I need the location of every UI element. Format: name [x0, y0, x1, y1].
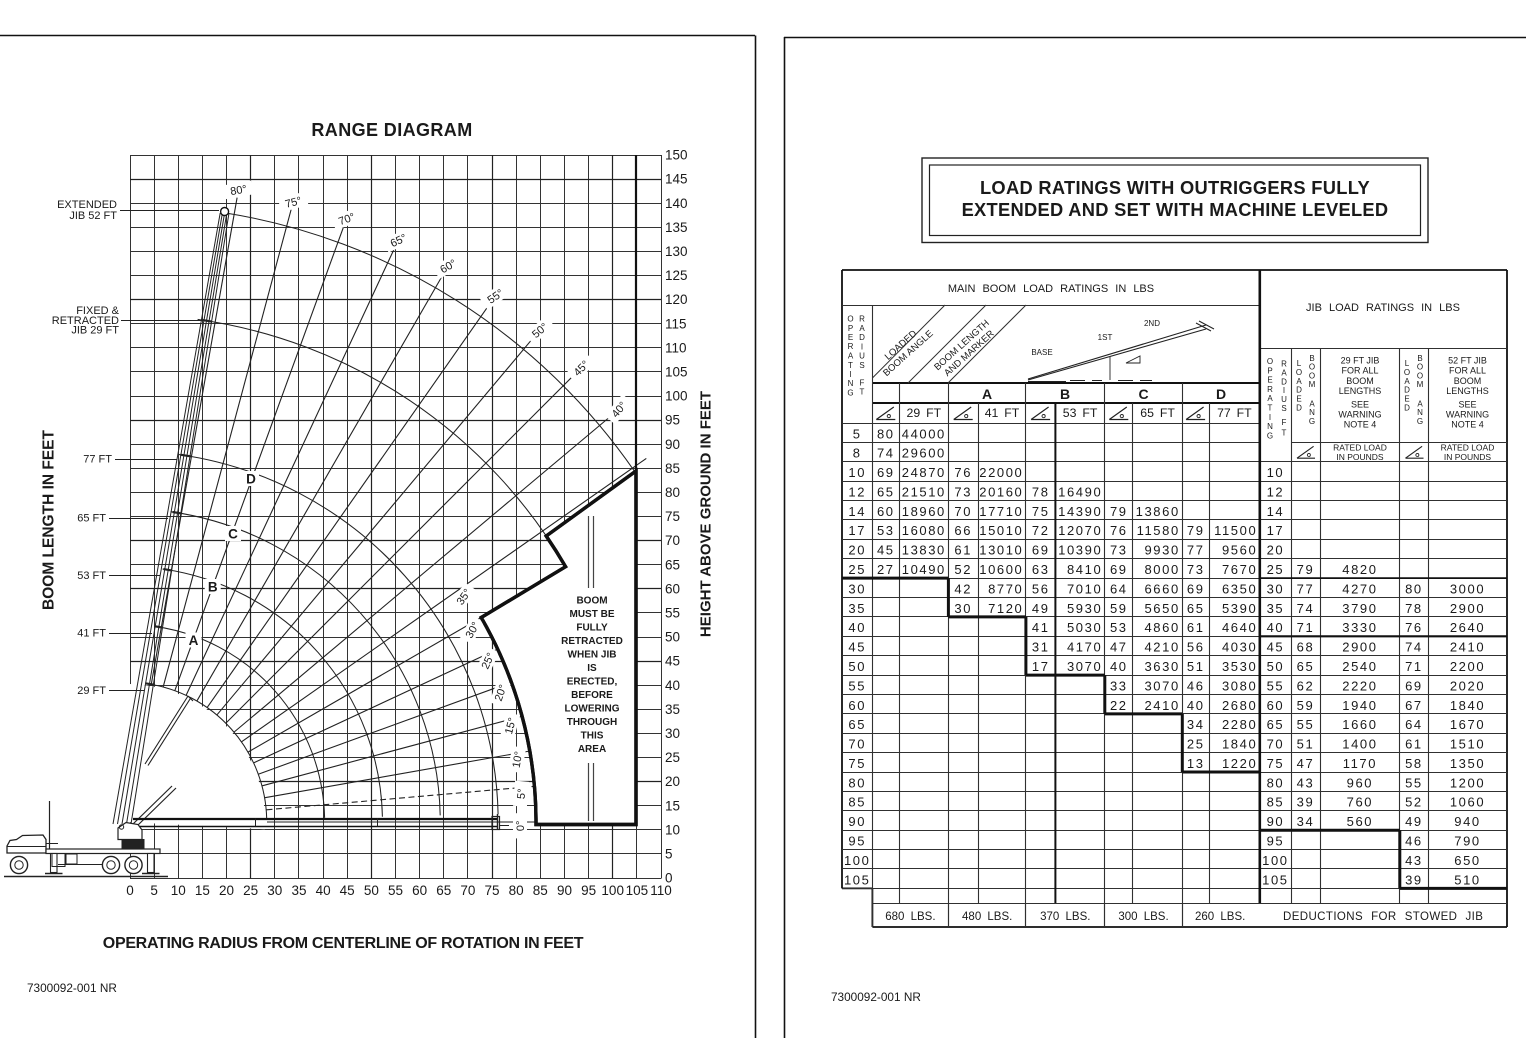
svg-text:D: D	[1404, 404, 1410, 413]
svg-text:35: 35	[291, 883, 306, 898]
svg-text:7010: 7010	[1067, 581, 1102, 596]
svg-text:NOTE 4: NOTE 4	[1344, 420, 1377, 430]
svg-text:0: 0	[665, 871, 673, 886]
svg-text:77: 77	[1297, 581, 1315, 596]
svg-text:1840: 1840	[1450, 698, 1485, 713]
svg-text:O: O	[1417, 371, 1423, 380]
svg-text:9930: 9930	[1144, 543, 1179, 558]
svg-text:8410: 8410	[1067, 562, 1102, 577]
svg-text:70: 70	[954, 504, 972, 519]
svg-text:50: 50	[665, 630, 680, 645]
svg-text:40: 40	[1187, 698, 1205, 713]
svg-text:1060: 1060	[1450, 795, 1485, 810]
svg-text:D: D	[1296, 404, 1302, 413]
svg-text:3070: 3070	[1144, 678, 1179, 693]
svg-text:65: 65	[436, 883, 451, 898]
svg-text:O: O	[847, 315, 853, 324]
svg-text:150: 150	[665, 148, 688, 163]
svg-text:5030: 5030	[1067, 620, 1102, 635]
svg-text:40: 40	[1267, 620, 1285, 635]
svg-text:IN POUNDS: IN POUNDS	[1444, 452, 1492, 462]
svg-text:50: 50	[848, 659, 866, 674]
svg-text:65: 65	[665, 557, 680, 572]
svg-text:I: I	[1269, 413, 1271, 422]
svg-text:M: M	[1309, 380, 1316, 389]
svg-text:53: 53	[1110, 620, 1128, 635]
svg-text:105: 105	[844, 872, 871, 887]
svg-text:370 LBS.: 370 LBS.	[1040, 911, 1090, 923]
svg-text:E: E	[1404, 395, 1409, 404]
svg-text:A: A	[982, 386, 992, 402]
svg-text:42: 42	[954, 581, 972, 596]
svg-text:RATED LOAD: RATED LOAD	[1441, 443, 1495, 453]
svg-text:FOR ALL: FOR ALL	[1449, 366, 1486, 376]
svg-text:95: 95	[581, 883, 596, 898]
svg-text:2020: 2020	[1450, 678, 1485, 693]
svg-text:63: 63	[1032, 562, 1050, 577]
svg-text:15: 15	[665, 798, 680, 813]
svg-text:THIS: THIS	[581, 731, 604, 742]
svg-text:75: 75	[1032, 504, 1050, 519]
svg-text:5: 5	[665, 847, 673, 862]
svg-text:T: T	[1268, 404, 1273, 413]
svg-text:47: 47	[1297, 756, 1315, 771]
svg-text:16080: 16080	[902, 523, 946, 538]
svg-text:BEFORE: BEFORE	[571, 690, 613, 701]
svg-text:WARNING: WARNING	[1338, 410, 1381, 420]
svg-text:65: 65	[1187, 601, 1205, 616]
svg-text:77: 77	[1187, 543, 1205, 558]
svg-text:2280: 2280	[1222, 717, 1257, 732]
svg-text:55: 55	[1405, 775, 1423, 790]
svg-text:BASE: BASE	[1031, 348, 1052, 357]
svg-text:6660: 6660	[1144, 581, 1179, 596]
svg-text:D: D	[859, 333, 865, 342]
svg-text:10: 10	[665, 822, 680, 837]
svg-text:N: N	[1417, 408, 1423, 417]
svg-text:AREA: AREA	[578, 744, 606, 755]
svg-text:17: 17	[848, 523, 866, 538]
svg-text:I: I	[1283, 386, 1285, 395]
svg-text:3790: 3790	[1342, 601, 1377, 616]
svg-text:55: 55	[848, 678, 866, 693]
svg-text:10390: 10390	[1058, 543, 1102, 558]
svg-text:30: 30	[954, 601, 972, 616]
svg-text:9560: 9560	[1222, 543, 1257, 558]
svg-text:75: 75	[1267, 756, 1285, 771]
svg-text:RATED LOAD: RATED LOAD	[1333, 443, 1387, 453]
svg-text:20: 20	[665, 774, 680, 789]
svg-text:R: R	[848, 342, 854, 351]
svg-text:RANGE DIAGRAM: RANGE DIAGRAM	[311, 120, 472, 140]
svg-text:G: G	[1417, 417, 1423, 426]
svg-text:5650: 5650	[1144, 601, 1179, 616]
svg-text:30: 30	[848, 581, 866, 596]
svg-text:2540: 2540	[1342, 659, 1377, 674]
svg-text:E: E	[1296, 395, 1301, 404]
svg-text:2900: 2900	[1450, 601, 1485, 616]
svg-text:T: T	[848, 361, 853, 370]
svg-text:960: 960	[1347, 775, 1374, 790]
svg-text:73: 73	[1187, 562, 1205, 577]
svg-text:95: 95	[1267, 834, 1285, 849]
svg-text:2220: 2220	[1342, 678, 1377, 693]
svg-text:B: B	[208, 580, 218, 595]
svg-text:U: U	[859, 352, 865, 361]
svg-text:55: 55	[388, 883, 403, 898]
svg-text:4170: 4170	[1067, 640, 1102, 655]
svg-text:BOOM: BOOM	[1346, 376, 1374, 386]
svg-text:80: 80	[665, 485, 680, 500]
svg-text:17: 17	[1032, 659, 1050, 674]
svg-text:510: 510	[1454, 872, 1481, 887]
svg-text:O: O	[1309, 371, 1315, 380]
svg-text:39: 39	[1405, 872, 1423, 887]
svg-text:8770: 8770	[988, 581, 1023, 596]
svg-text:10600: 10600	[979, 562, 1023, 577]
svg-text:69: 69	[1110, 562, 1128, 577]
svg-text:69: 69	[1405, 678, 1423, 693]
svg-text:70: 70	[665, 533, 680, 548]
svg-text:JIB LOAD RATINGS IN LBS: JIB LOAD RATINGS IN LBS	[1306, 302, 1460, 314]
svg-text:D: D	[246, 472, 256, 487]
svg-text:70: 70	[848, 737, 866, 752]
svg-text:I: I	[861, 342, 863, 351]
svg-text:8: 8	[853, 446, 862, 461]
svg-text:C: C	[1138, 386, 1148, 402]
svg-text:105: 105	[665, 365, 688, 380]
svg-text:A: A	[189, 633, 199, 648]
svg-text:U: U	[1281, 395, 1287, 404]
svg-text:73: 73	[954, 485, 972, 500]
svg-text:3630: 3630	[1144, 659, 1179, 674]
svg-text:69: 69	[877, 465, 895, 480]
svg-text:41 FT: 41 FT	[77, 628, 106, 640]
svg-text:10: 10	[848, 465, 866, 480]
svg-text:4860: 4860	[1144, 620, 1179, 635]
svg-text:75: 75	[848, 756, 866, 771]
svg-text:4820: 4820	[1342, 562, 1377, 577]
svg-text:3080: 3080	[1222, 678, 1257, 693]
svg-text:56: 56	[1032, 581, 1050, 596]
svg-text:68: 68	[1297, 640, 1315, 655]
svg-text:MAIN BOOM LOAD RATINGS IN: MAIN BOOM LOAD RATINGS IN LBS	[948, 283, 1154, 295]
svg-text:50: 50	[1267, 659, 1285, 674]
svg-text:760: 760	[1347, 795, 1374, 810]
svg-text:45: 45	[665, 654, 680, 669]
svg-text:80: 80	[877, 426, 895, 441]
svg-text:79: 79	[1297, 562, 1315, 577]
svg-text:0°: 0°	[515, 821, 527, 832]
svg-text:140: 140	[665, 196, 688, 211]
svg-text:29 FT: 29 FT	[906, 406, 941, 420]
svg-text:44000: 44000	[902, 426, 946, 441]
svg-text:16490: 16490	[1058, 485, 1102, 500]
svg-text:IS: IS	[587, 663, 597, 674]
svg-text:27: 27	[877, 562, 895, 577]
svg-text:1350: 1350	[1450, 756, 1485, 771]
svg-text:C: C	[228, 527, 238, 542]
svg-text:THROUGH: THROUGH	[567, 717, 618, 728]
svg-text:N: N	[1309, 408, 1315, 417]
svg-text:71: 71	[1297, 620, 1315, 635]
svg-text:A: A	[1267, 394, 1273, 403]
svg-text:25: 25	[848, 562, 866, 577]
svg-text:B: B	[1309, 354, 1314, 363]
svg-text:WARNING: WARNING	[1446, 410, 1489, 420]
svg-text:T: T	[860, 388, 865, 397]
svg-text:40: 40	[665, 678, 680, 693]
svg-text:A: A	[1296, 377, 1302, 386]
svg-text:SEE: SEE	[1458, 400, 1476, 410]
svg-text:12070: 12070	[1058, 523, 1102, 538]
svg-text:90: 90	[848, 814, 866, 829]
svg-text:40: 40	[316, 883, 331, 898]
svg-text:17: 17	[1267, 523, 1285, 538]
svg-text:58: 58	[1405, 756, 1423, 771]
svg-text:60: 60	[877, 504, 895, 519]
svg-text:69: 69	[1187, 581, 1205, 596]
svg-text:13830: 13830	[902, 543, 946, 558]
svg-text:0: 0	[126, 883, 134, 898]
svg-text:BOOM: BOOM	[576, 596, 607, 607]
svg-text:40: 40	[1110, 659, 1128, 674]
svg-text:100: 100	[844, 853, 871, 868]
svg-text:O: O	[1309, 363, 1315, 372]
svg-text:F: F	[1282, 418, 1287, 427]
svg-text:1200: 1200	[1450, 775, 1485, 790]
svg-text:46: 46	[1405, 834, 1423, 849]
svg-text:13: 13	[1187, 756, 1205, 771]
svg-text:940: 940	[1454, 814, 1481, 829]
svg-text:680 LBS.: 680 LBS.	[885, 911, 935, 923]
svg-text:R: R	[1281, 360, 1287, 369]
svg-text:3530: 3530	[1222, 659, 1257, 674]
svg-text:8000: 8000	[1144, 562, 1179, 577]
svg-text:13860: 13860	[1136, 504, 1180, 519]
svg-text:100: 100	[601, 883, 624, 898]
svg-text:7300092-001 NR: 7300092-001 NR	[831, 990, 921, 1004]
svg-text:O: O	[1267, 357, 1273, 366]
svg-text:2200: 2200	[1450, 659, 1485, 674]
svg-text:85: 85	[848, 795, 866, 810]
svg-text:25: 25	[665, 750, 680, 765]
svg-text:55: 55	[1297, 717, 1315, 732]
svg-text:105: 105	[1262, 872, 1289, 887]
svg-text:A: A	[1309, 400, 1315, 409]
svg-text:BOOM LENGTH IN FEET: BOOM LENGTH IN FEET	[41, 429, 58, 610]
svg-text:80: 80	[1267, 775, 1285, 790]
svg-text:49: 49	[1405, 814, 1423, 829]
svg-text:29600: 29600	[902, 446, 946, 461]
svg-text:130: 130	[665, 244, 688, 259]
svg-text:40: 40	[848, 620, 866, 635]
svg-text:33: 33	[1110, 678, 1128, 693]
svg-text:4030: 4030	[1222, 640, 1257, 655]
svg-text:NOTE 4: NOTE 4	[1451, 420, 1484, 430]
svg-text:N: N	[848, 379, 854, 388]
svg-text:T: T	[1282, 429, 1287, 438]
svg-text:1660: 1660	[1342, 717, 1377, 732]
svg-text:6350: 6350	[1222, 581, 1257, 596]
svg-text:65: 65	[848, 717, 866, 732]
svg-text:45: 45	[1267, 640, 1285, 655]
svg-text:1170: 1170	[1343, 756, 1377, 771]
svg-text:P: P	[1267, 366, 1272, 375]
svg-text:85: 85	[1267, 795, 1285, 810]
svg-text:JIB 52 FT: JIB 52 FT	[69, 210, 117, 222]
svg-text:46: 46	[1187, 678, 1205, 693]
svg-text:45: 45	[848, 640, 866, 655]
svg-text:70: 70	[1267, 737, 1285, 752]
svg-text:100: 100	[665, 389, 688, 404]
svg-text:N: N	[1267, 422, 1273, 431]
svg-text:1510: 1510	[1450, 737, 1485, 752]
svg-text:120: 120	[665, 292, 688, 307]
svg-text:S: S	[859, 361, 864, 370]
svg-text:51: 51	[1187, 659, 1205, 674]
svg-text:75: 75	[665, 509, 680, 524]
svg-text:45: 45	[877, 543, 895, 558]
svg-text:15: 15	[195, 883, 210, 898]
svg-text:4270: 4270	[1342, 581, 1377, 596]
svg-text:80: 80	[509, 883, 524, 898]
svg-text:52: 52	[1405, 795, 1423, 810]
svg-text:R: R	[1267, 385, 1273, 394]
svg-text:21510: 21510	[902, 485, 946, 500]
svg-text:67: 67	[1405, 698, 1423, 713]
svg-text:95: 95	[665, 413, 680, 428]
svg-text:R: R	[859, 315, 865, 324]
svg-text:110: 110	[665, 340, 687, 355]
svg-text:30: 30	[665, 726, 680, 741]
svg-text:G: G	[847, 389, 853, 398]
svg-text:1840: 1840	[1222, 737, 1257, 752]
svg-text:650: 650	[1454, 853, 1481, 868]
svg-text:HEIGHT ABOVE GROUND IN FEET: HEIGHT ABOVE GROUND IN FEET	[698, 391, 715, 637]
svg-text:I: I	[849, 370, 851, 379]
svg-text:29 FT JIB: 29 FT JIB	[1341, 356, 1380, 366]
svg-text:4210: 4210	[1144, 640, 1179, 655]
svg-text:13010: 13010	[979, 543, 1023, 558]
svg-text:L: L	[1405, 359, 1410, 368]
svg-text:2410: 2410	[1144, 698, 1179, 713]
svg-text:62: 62	[1297, 678, 1315, 693]
svg-text:35: 35	[665, 702, 680, 717]
svg-text:FULLY: FULLY	[576, 623, 608, 634]
svg-text:135: 135	[665, 220, 688, 235]
svg-text:260 LBS.: 260 LBS.	[1195, 911, 1245, 923]
svg-text:LENGTHS: LENGTHS	[1339, 386, 1382, 396]
svg-text:51: 51	[1297, 737, 1315, 752]
svg-text:D: D	[1404, 386, 1410, 395]
svg-text:30: 30	[267, 883, 282, 898]
svg-text:85: 85	[665, 461, 680, 476]
svg-text:E: E	[1267, 376, 1272, 385]
svg-text:11500: 11500	[1214, 523, 1257, 538]
svg-text:76: 76	[954, 465, 972, 480]
svg-text:90: 90	[557, 883, 572, 898]
svg-text:O: O	[1404, 368, 1410, 377]
svg-text:75: 75	[484, 883, 499, 898]
svg-text:10: 10	[1267, 465, 1285, 480]
svg-text:JIB 29 FT: JIB 29 FT	[71, 325, 119, 337]
svg-text:3070: 3070	[1067, 659, 1102, 674]
svg-text:65: 65	[1267, 717, 1285, 732]
svg-text:64: 64	[1110, 581, 1128, 596]
svg-text:79: 79	[1187, 523, 1205, 538]
svg-text:7300092-001 NR: 7300092-001 NR	[27, 981, 117, 995]
svg-text:20: 20	[219, 883, 234, 898]
svg-text:2900: 2900	[1342, 640, 1377, 655]
svg-text:1220: 1220	[1222, 756, 1257, 771]
svg-text:53: 53	[877, 523, 895, 538]
svg-text:S: S	[1281, 404, 1286, 413]
svg-text:35: 35	[848, 601, 866, 616]
svg-text:LOAD RATINGS WITH OUTRIGGERS F: LOAD RATINGS WITH OUTRIGGERS FULLY	[980, 177, 1370, 198]
svg-text:69: 69	[1032, 543, 1050, 558]
svg-text:12: 12	[848, 485, 866, 500]
svg-text:56: 56	[1187, 640, 1205, 655]
svg-text:71: 71	[1405, 659, 1423, 674]
svg-text:15010: 15010	[979, 523, 1023, 538]
svg-text:50: 50	[364, 883, 379, 898]
svg-text:D: D	[1216, 386, 1226, 402]
svg-text:B: B	[1417, 354, 1422, 363]
svg-text:1400: 1400	[1342, 737, 1377, 752]
svg-text:79: 79	[1110, 504, 1128, 519]
svg-text:35: 35	[1267, 601, 1285, 616]
svg-text:25: 25	[1187, 737, 1205, 752]
svg-text:73: 73	[1110, 543, 1128, 558]
svg-text:60: 60	[665, 581, 680, 596]
svg-text:24870: 24870	[902, 465, 946, 480]
svg-text:480 LBS.: 480 LBS.	[962, 911, 1012, 923]
svg-text:49: 49	[1032, 601, 1050, 616]
svg-text:80: 80	[848, 775, 866, 790]
svg-text:61: 61	[954, 543, 972, 558]
svg-text:77 FT: 77 FT	[83, 454, 112, 466]
svg-text:F: F	[860, 379, 865, 388]
svg-text:5: 5	[853, 426, 862, 441]
svg-text:LENGTHS: LENGTHS	[1446, 386, 1489, 396]
svg-text:A: A	[1404, 377, 1410, 386]
svg-text:D: D	[1296, 386, 1302, 395]
svg-text:65 FT: 65 FT	[77, 513, 106, 525]
svg-text:FOR ALL: FOR ALL	[1341, 366, 1378, 376]
svg-text:74: 74	[877, 446, 895, 461]
svg-text:2680: 2680	[1222, 698, 1257, 713]
svg-text:22: 22	[1110, 698, 1128, 713]
svg-text:11580: 11580	[1137, 523, 1180, 538]
svg-text:39: 39	[1297, 795, 1315, 810]
svg-text:A: A	[859, 324, 865, 333]
svg-text:25: 25	[1267, 562, 1285, 577]
svg-text:52: 52	[954, 562, 972, 577]
svg-text:80: 80	[1405, 581, 1423, 596]
svg-text:790: 790	[1454, 834, 1481, 849]
svg-text:55: 55	[665, 606, 680, 621]
svg-text:DEDUCTIONS FOR STOWED JIB: DEDUCTIONS FOR STOWED JIB	[1283, 911, 1483, 923]
svg-text:76: 76	[1405, 620, 1423, 635]
svg-text:2640: 2640	[1450, 620, 1485, 635]
svg-text:20: 20	[848, 543, 866, 558]
svg-text:1670: 1670	[1450, 717, 1485, 732]
svg-text:55: 55	[1267, 678, 1285, 693]
svg-text:34: 34	[1297, 814, 1315, 829]
svg-text:D: D	[1281, 377, 1287, 386]
svg-text:3000: 3000	[1450, 581, 1485, 596]
